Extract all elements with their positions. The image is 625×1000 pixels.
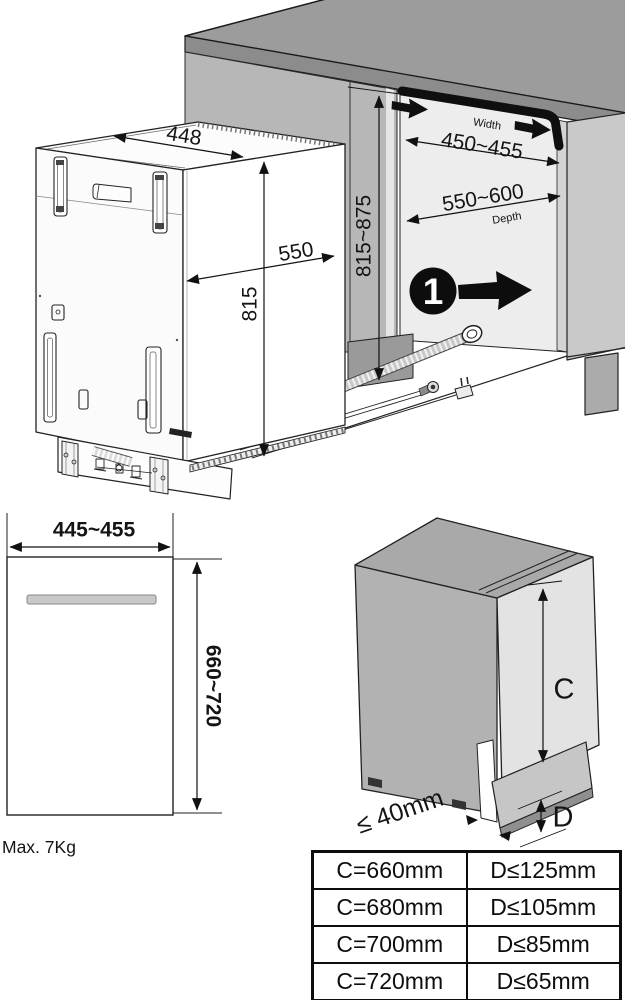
gap-arrow-icon [466,815,478,825]
table-row: C=660mm D≤125mm [313,852,621,890]
table-cell-c: C=720mm [313,963,467,1000]
power-plug-icon [455,377,473,399]
table-cell-d: D≤105mm [467,889,621,926]
dim-d-letter: D [553,804,574,833]
dim-front-width-label: 445~455 [53,520,135,541]
dim-top-depth-label: 550 [277,239,315,265]
table-row: C=680mm D≤105mm [313,889,621,926]
table-cell-c: C=680mm [313,889,467,926]
cd-dimension-table: C=660mm D≤125mm C=680mm D≤105mm C=700mm … [311,850,622,1000]
max-weight-label: Max. 7Kg [2,839,76,857]
step-1-badge: 1 [410,268,457,315]
table-row: C=720mm D≤65mm [313,963,621,1000]
dim-unit-height-label: 815 [240,286,261,321]
dim-top-width-label: 448 [165,123,203,149]
svg-text:1: 1 [423,271,444,312]
door-handle-bar [27,595,156,604]
installation-manual-page: 1 448 550 815 815~875 Widt [0,0,625,1000]
dim-front-height-label: 660~720 [203,645,224,727]
table-cell-d: D≤65mm [467,963,621,1000]
dim-c-letter: C [554,676,575,705]
table-cell-c: C=660mm [313,852,467,890]
table-cell-c: C=700mm [313,926,467,963]
front-view-drawing [7,513,222,815]
dim-niche-height-label: 815~875 [354,195,375,277]
table-cell-d: D≤125mm [467,852,621,890]
table-cell-d: D≤85mm [467,926,621,963]
dishwasher-drawing [36,122,345,499]
water-hose-connector [419,382,439,397]
table-row: C=700mm D≤85mm [313,926,621,963]
